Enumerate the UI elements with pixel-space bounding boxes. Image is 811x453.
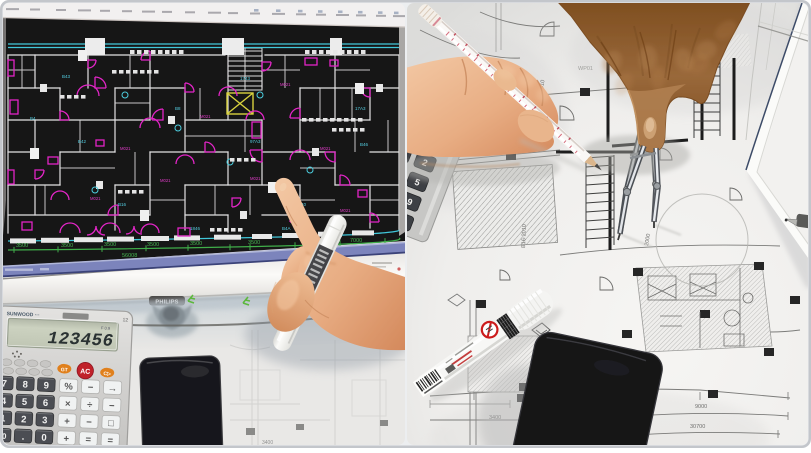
svg-text:9000: 9000 [695, 404, 707, 410]
svg-text:%: % [64, 381, 73, 392]
svg-text:3500: 3500 [16, 243, 28, 249]
svg-text:M021: M021 [340, 208, 351, 213]
svg-text:0: 0 [41, 433, 47, 444]
svg-text:3500: 3500 [61, 243, 73, 249]
svg-text:3: 3 [42, 415, 48, 426]
svg-text:M021: M021 [160, 178, 171, 183]
svg-text:56008: 56008 [122, 253, 137, 259]
svg-text:1846: 1846 [190, 226, 201, 231]
svg-text:F 0.9: F 0.9 [101, 325, 111, 330]
svg-text:=: = [107, 435, 113, 446]
svg-text:M021: M021 [120, 146, 131, 151]
svg-text:7000: 7000 [350, 238, 362, 244]
svg-text:+: + [63, 433, 69, 444]
svg-text:B42: B42 [78, 139, 87, 144]
svg-text:.: . [21, 432, 24, 443]
svg-text:3500: 3500 [104, 242, 116, 248]
svg-text:÷: ÷ [87, 400, 93, 411]
svg-text:M021: M021 [200, 114, 211, 119]
svg-text:B46: B46 [360, 142, 369, 147]
svg-text:97A3: 97A3 [250, 139, 261, 144]
svg-text:8: 8 [22, 379, 28, 390]
svg-text:=: = [85, 434, 91, 445]
svg-text:17A3: 17A3 [355, 106, 366, 111]
svg-text:GT: GT [61, 367, 68, 373]
svg-text:30700: 30700 [690, 424, 705, 430]
svg-text:M021: M021 [320, 146, 331, 151]
svg-text:1743: 1743 [240, 76, 251, 81]
svg-text:□: □ [108, 418, 114, 429]
svg-text:M021: M021 [250, 176, 261, 181]
svg-text:123456: 123456 [47, 329, 114, 352]
svg-text:3500: 3500 [190, 241, 202, 247]
svg-text:−: − [87, 382, 93, 393]
svg-text:B8: B8 [175, 106, 181, 111]
svg-text:2: 2 [21, 414, 27, 425]
svg-text:B16: B16 [118, 202, 127, 207]
svg-text:→: → [108, 383, 118, 394]
svg-text:12: 12 [122, 317, 128, 323]
svg-text:WP01: WP01 [578, 66, 593, 72]
svg-text:B43: B43 [62, 74, 71, 79]
svg-text:×: × [65, 399, 71, 410]
svg-text:M021: M021 [280, 82, 291, 87]
svg-text:AC: AC [80, 368, 90, 375]
svg-text:B4: B4 [30, 116, 36, 121]
svg-text:−: − [86, 417, 92, 428]
svg-text:6: 6 [43, 398, 49, 409]
svg-text:B16·2010: B16·2010 [521, 224, 528, 248]
svg-text:M021: M021 [90, 196, 101, 201]
svg-text:−: − [109, 401, 115, 412]
svg-text:3500: 3500 [147, 242, 159, 248]
svg-text:+: + [64, 416, 70, 427]
svg-text:3500: 3500 [248, 240, 260, 246]
svg-text:B4A: B4A [282, 226, 291, 231]
svg-text:9: 9 [43, 380, 49, 391]
